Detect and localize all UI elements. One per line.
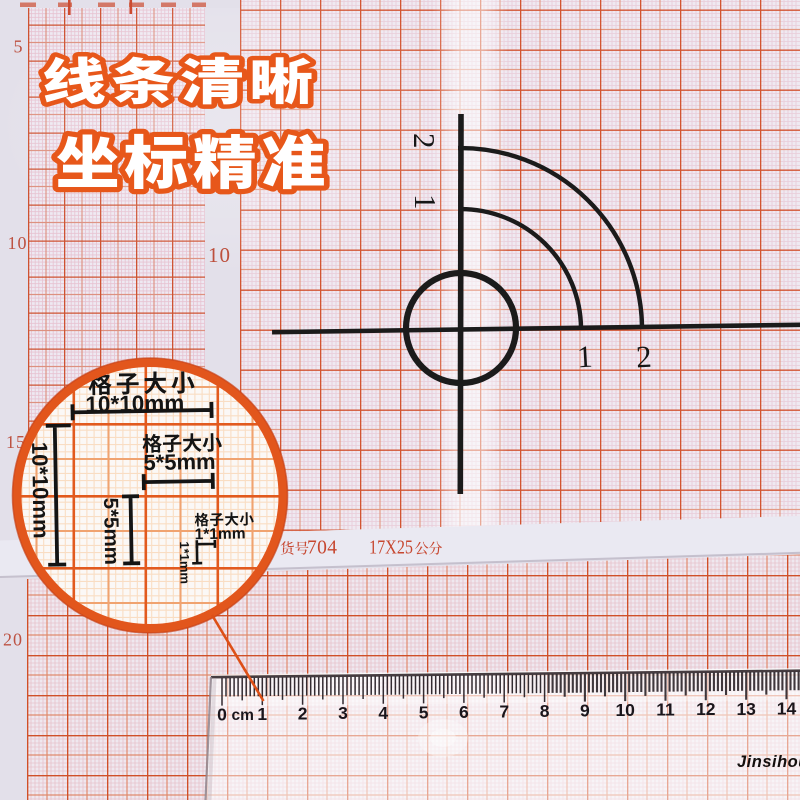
svg-text:5: 5: [419, 702, 429, 722]
svg-text:13: 13: [736, 699, 756, 719]
svg-text:10: 10: [615, 700, 635, 720]
svg-text:Jinsihou: Jinsihou: [737, 753, 800, 771]
svg-text:17X25: 17X25: [369, 538, 413, 559]
svg-text:3: 3: [338, 703, 348, 723]
svg-text:1*1mm: 1*1mm: [195, 525, 246, 543]
svg-text:9: 9: [580, 701, 590, 721]
svg-text:7: 7: [499, 702, 509, 722]
svg-text:12: 12: [696, 699, 716, 719]
svg-text:10: 10: [8, 233, 28, 253]
svg-text:cm: cm: [232, 707, 254, 724]
svg-text:6: 6: [459, 702, 469, 722]
svg-text:5*5mm: 5*5mm: [143, 449, 216, 475]
svg-text:10: 10: [208, 243, 231, 267]
svg-text:2: 2: [635, 339, 652, 375]
svg-text:8: 8: [540, 701, 550, 721]
svg-text:10*10mm: 10*10mm: [85, 390, 184, 417]
svg-text:1: 1: [257, 704, 267, 724]
svg-text:2: 2: [298, 704, 308, 724]
svg-text:2: 2: [407, 133, 442, 149]
svg-text:704: 704: [307, 538, 337, 559]
svg-text:1*1mm: 1*1mm: [177, 541, 193, 584]
svg-text:5: 5: [14, 37, 23, 57]
svg-text:4: 4: [378, 703, 388, 723]
svg-text:14: 14: [777, 698, 797, 718]
svg-text:10*10mm: 10*10mm: [27, 442, 54, 539]
svg-text:1: 1: [576, 339, 593, 375]
svg-text:5*5mm: 5*5mm: [99, 497, 123, 565]
svg-text:11: 11: [656, 700, 675, 720]
svg-text:1: 1: [408, 194, 443, 210]
svg-text:20: 20: [3, 630, 23, 650]
svg-text:0: 0: [217, 705, 227, 725]
